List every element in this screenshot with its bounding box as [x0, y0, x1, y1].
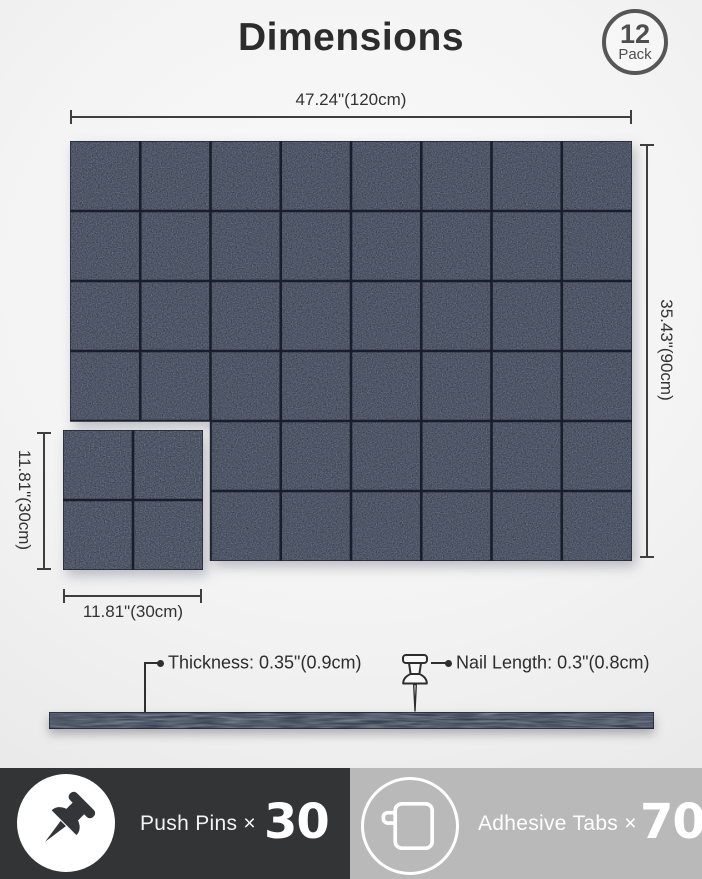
felt-texture-strip	[49, 712, 654, 734]
single-width-label: 11.81"(30cm)	[83, 602, 183, 622]
single-width-dimension-line	[63, 595, 202, 597]
adhesive-tab-icon	[373, 789, 447, 863]
nail-leader-dot	[445, 660, 452, 667]
pushpin-outline-icon	[398, 653, 432, 714]
push-pins-section: Push Pins × 30	[0, 768, 350, 879]
pack-label: Pack	[618, 47, 651, 62]
push-pins-count: 30	[264, 793, 329, 849]
panel-height-label: 35.43"(90cm)	[656, 299, 676, 400]
pack-count-badge: 12 Pack	[602, 9, 668, 75]
panel-height-dimension-line	[646, 144, 648, 558]
single-height-dimension-line	[43, 432, 45, 570]
felt-texture-small	[63, 430, 203, 575]
adhesive-tab-icon-circle	[361, 777, 459, 875]
included-items-bar: Push Pins × 30 Adhesive Tabs × 70	[0, 768, 702, 879]
single-height-label: 11.81"(30cm)	[14, 450, 34, 550]
panel-width-dimension-line	[70, 116, 632, 118]
adhesive-tabs-section: Adhesive Tabs × 70	[350, 768, 702, 879]
push-pins-label: Push Pins ×	[140, 812, 256, 836]
push-pin-icon	[31, 788, 101, 858]
nail-length-label: Nail Length: 0.3"(0.8cm)	[456, 653, 649, 674]
panel-width-label: 47.24"(120cm)	[70, 90, 632, 110]
adhesive-tabs-label: Adhesive Tabs ×	[478, 812, 637, 836]
page-title: Dimensions	[0, 16, 702, 60]
thickness-leader-dot	[157, 660, 164, 667]
thickness-label: Thickness: 0.35"(0.9cm)	[168, 653, 361, 674]
thickness-leader-vertical	[144, 662, 146, 712]
single-panel	[63, 430, 203, 575]
adhesive-tabs-count: 70	[640, 793, 702, 849]
pack-count: 12	[620, 22, 650, 46]
push-pin-icon-circle	[17, 774, 115, 872]
product-dimensions-infographic: Dimensions 12 Pack 47.24"(120cm) 35.43"	[0, 0, 702, 879]
panel-side-view-strip	[49, 712, 654, 734]
